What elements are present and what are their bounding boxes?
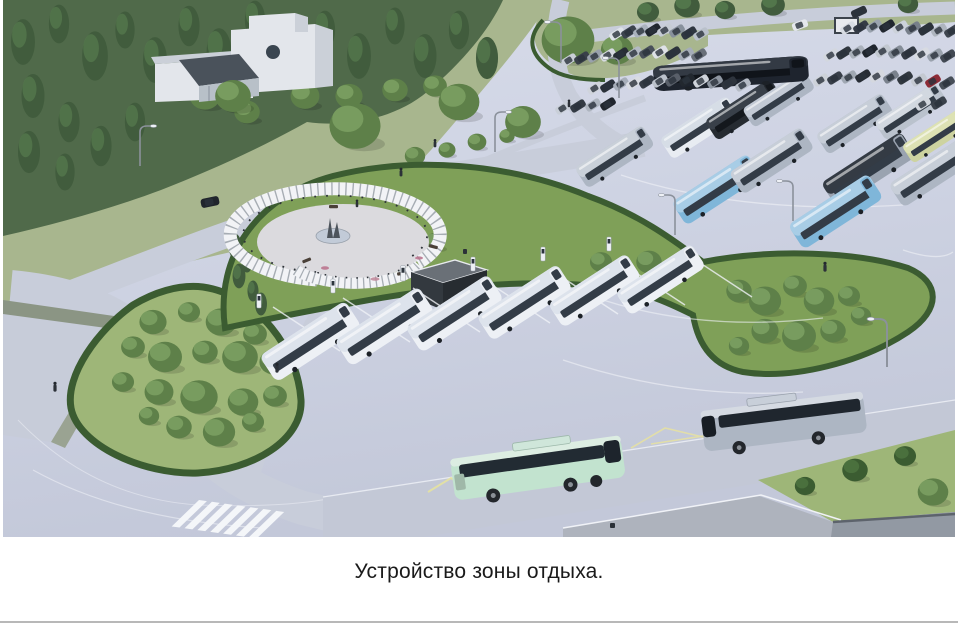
architectural-rendering xyxy=(3,0,955,537)
fountain xyxy=(316,229,350,244)
slide-page: Устройство зоны отдыха. xyxy=(0,0,958,626)
figure-caption: Устройство зоны отдыха. xyxy=(354,560,603,584)
caption-band: Устройство зоны отдыха. xyxy=(0,537,958,607)
bottom-divider xyxy=(0,621,958,623)
rest-area-scene xyxy=(3,0,955,537)
round-window xyxy=(266,45,280,59)
